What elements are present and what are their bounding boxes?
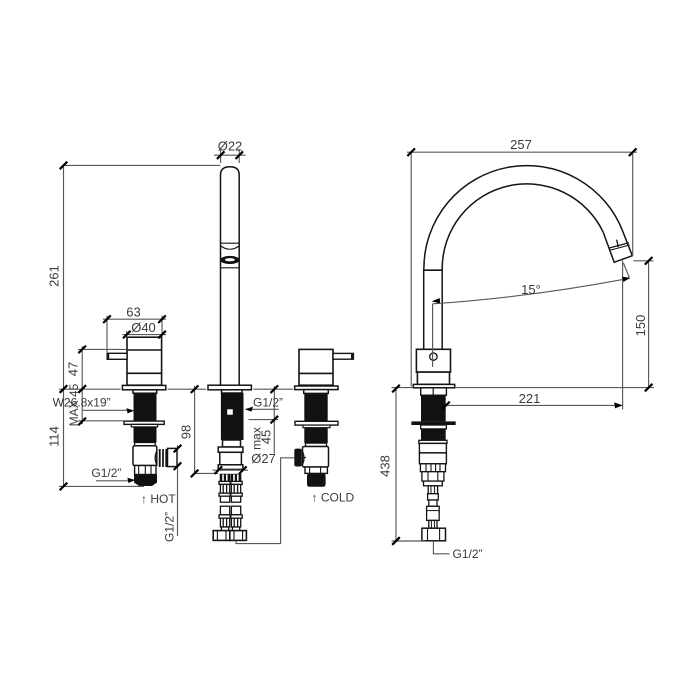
- svg-text:114: 114: [47, 426, 62, 447]
- svg-text:15°: 15°: [521, 282, 541, 297]
- svg-text:47: 47: [66, 362, 81, 376]
- svg-text:98: 98: [179, 425, 194, 439]
- svg-text:438: 438: [378, 455, 393, 477]
- svg-text:63: 63: [126, 304, 140, 319]
- svg-text:G1/2”: G1/2”: [453, 547, 483, 561]
- svg-text:221: 221: [519, 391, 541, 406]
- svg-text:45: 45: [258, 430, 273, 444]
- svg-text:Ø27: Ø27: [251, 451, 276, 466]
- svg-text:150: 150: [633, 315, 648, 337]
- svg-text:↑ HOT: ↑ HOT: [141, 492, 176, 506]
- svg-text:Ø22: Ø22: [218, 139, 243, 154]
- svg-text:Ø40: Ø40: [131, 320, 156, 335]
- svg-text:261: 261: [47, 265, 62, 287]
- svg-text:G1/2”: G1/2”: [253, 395, 283, 409]
- svg-text:G1/2”: G1/2”: [91, 466, 121, 480]
- svg-text:W26.8x19”: W26.8x19”: [53, 395, 111, 409]
- svg-text:G1/2”: G1/2”: [163, 512, 177, 542]
- svg-text:↑ COLD: ↑ COLD: [312, 491, 355, 505]
- svg-text:257: 257: [510, 137, 532, 152]
